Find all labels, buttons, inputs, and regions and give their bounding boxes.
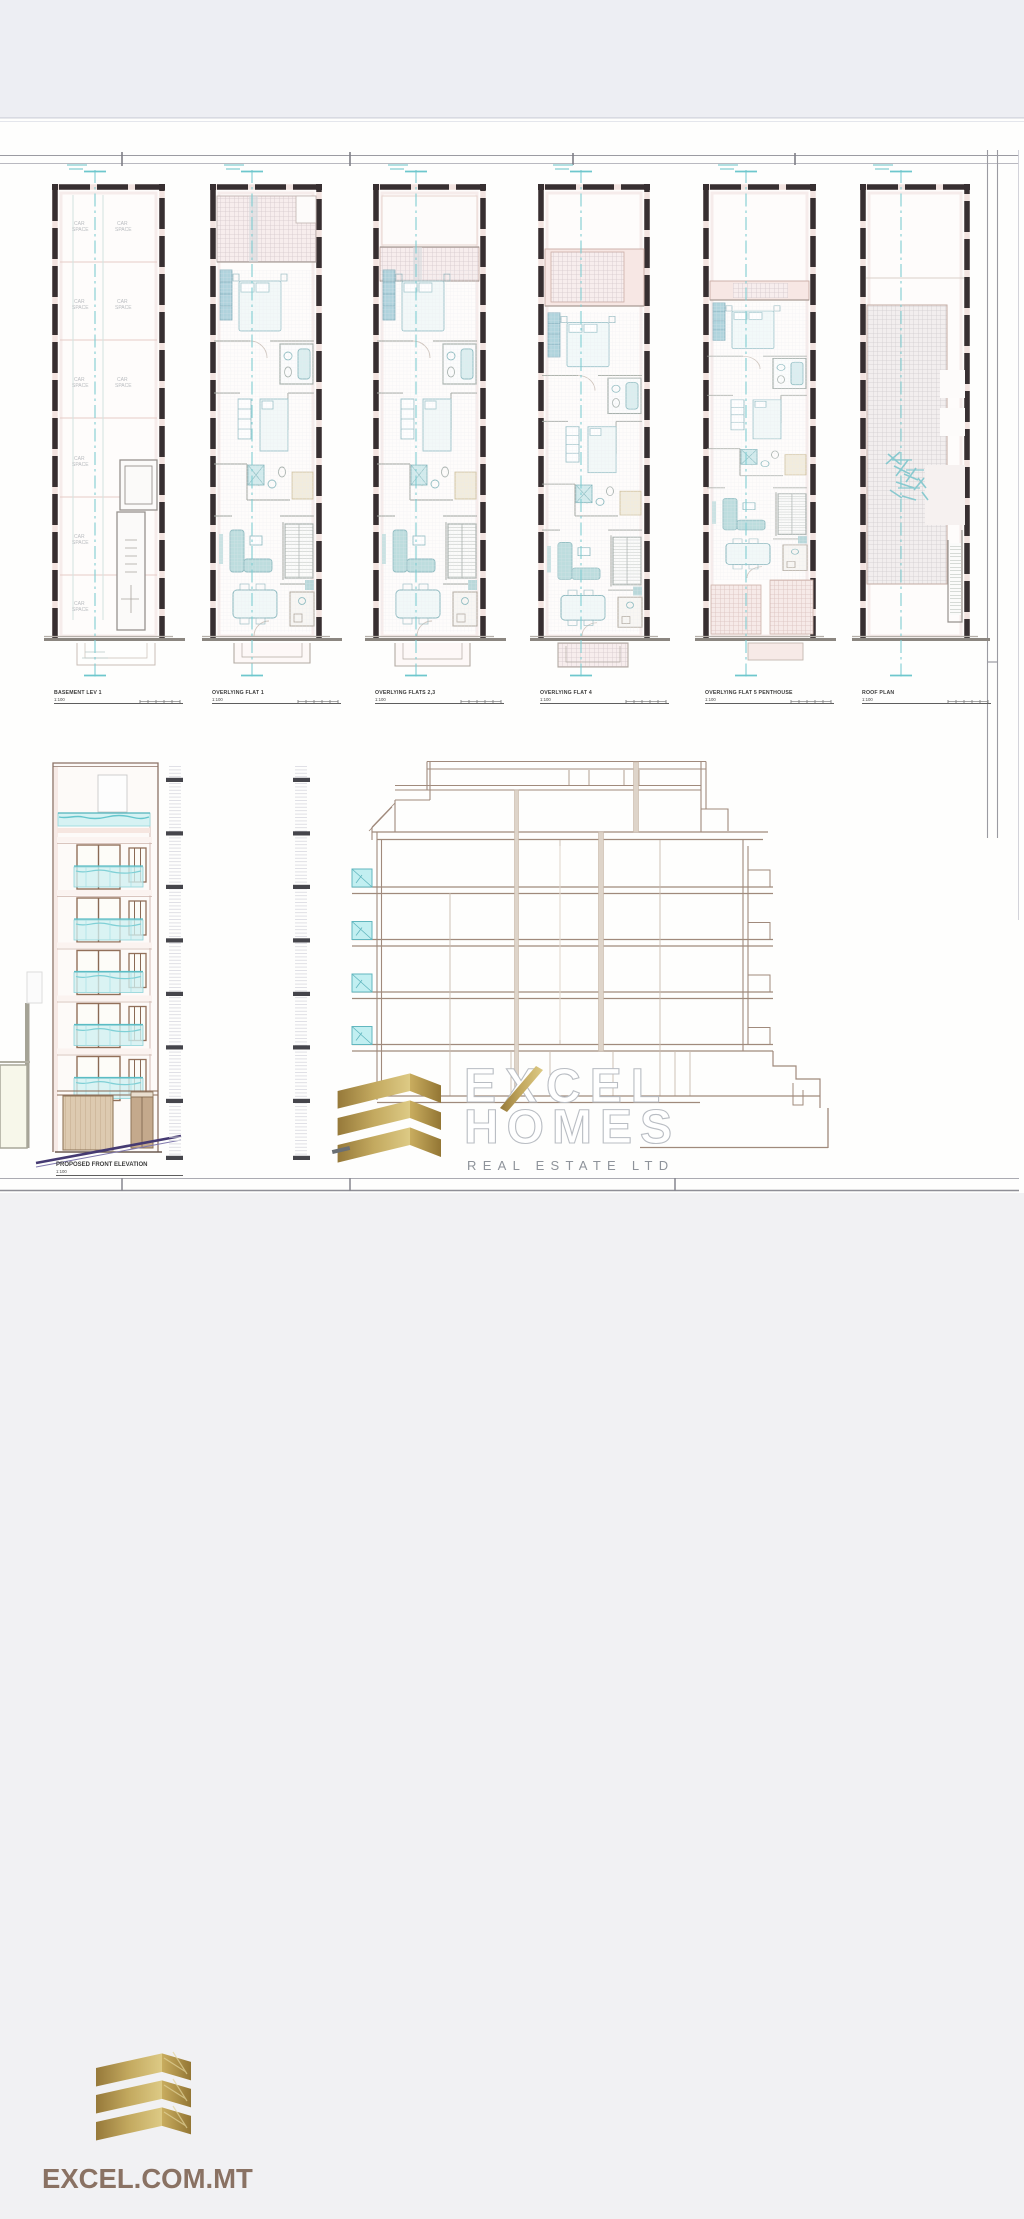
svg-text:SPACE: SPACE	[115, 227, 132, 233]
svg-text:SPACE: SPACE	[72, 607, 89, 613]
svg-text:1:100: 1:100	[375, 697, 386, 702]
svg-text:OVERLYING FLAT 4: OVERLYING FLAT 4	[540, 690, 592, 696]
svg-text:HOMES: HOMES	[464, 1101, 680, 1154]
svg-text:SPACE: SPACE	[72, 305, 89, 311]
svg-text:OVERLYING FLAT 5 PENTHOUSE: OVERLYING FLAT 5 PENTHOUSE	[705, 690, 793, 696]
svg-text:1:100: 1:100	[705, 697, 716, 702]
svg-text:BASEMENT LEV 1: BASEMENT LEV 1	[54, 690, 102, 696]
svg-text:SPACE: SPACE	[72, 383, 89, 389]
svg-text:SPACE: SPACE	[115, 383, 132, 389]
svg-text:1:100: 1:100	[56, 1169, 67, 1174]
svg-text:1:100: 1:100	[54, 697, 65, 702]
svg-text:SPACE: SPACE	[72, 227, 89, 233]
svg-text:1:100: 1:100	[862, 697, 873, 702]
svg-text:SPACE: SPACE	[72, 462, 89, 468]
svg-text:REAL ESTATE LTD: REAL ESTATE LTD	[467, 1158, 674, 1173]
svg-text:OVERLYING FLATS 2,3: OVERLYING FLATS 2,3	[375, 690, 435, 696]
svg-text:EXCEL.COM.MT: EXCEL.COM.MT	[42, 2163, 253, 2194]
svg-text:1:100: 1:100	[212, 697, 223, 702]
svg-text:PROPOSED FRONT ELEVATION: PROPOSED FRONT ELEVATION	[56, 1162, 147, 1168]
svg-text:SPACE: SPACE	[115, 305, 132, 311]
svg-text:ROOF PLAN: ROOF PLAN	[862, 690, 894, 696]
svg-text:1:100: 1:100	[540, 697, 551, 702]
svg-text:SPACE: SPACE	[72, 540, 89, 546]
svg-text:OVERLYING FLAT 1: OVERLYING FLAT 1	[212, 690, 264, 696]
